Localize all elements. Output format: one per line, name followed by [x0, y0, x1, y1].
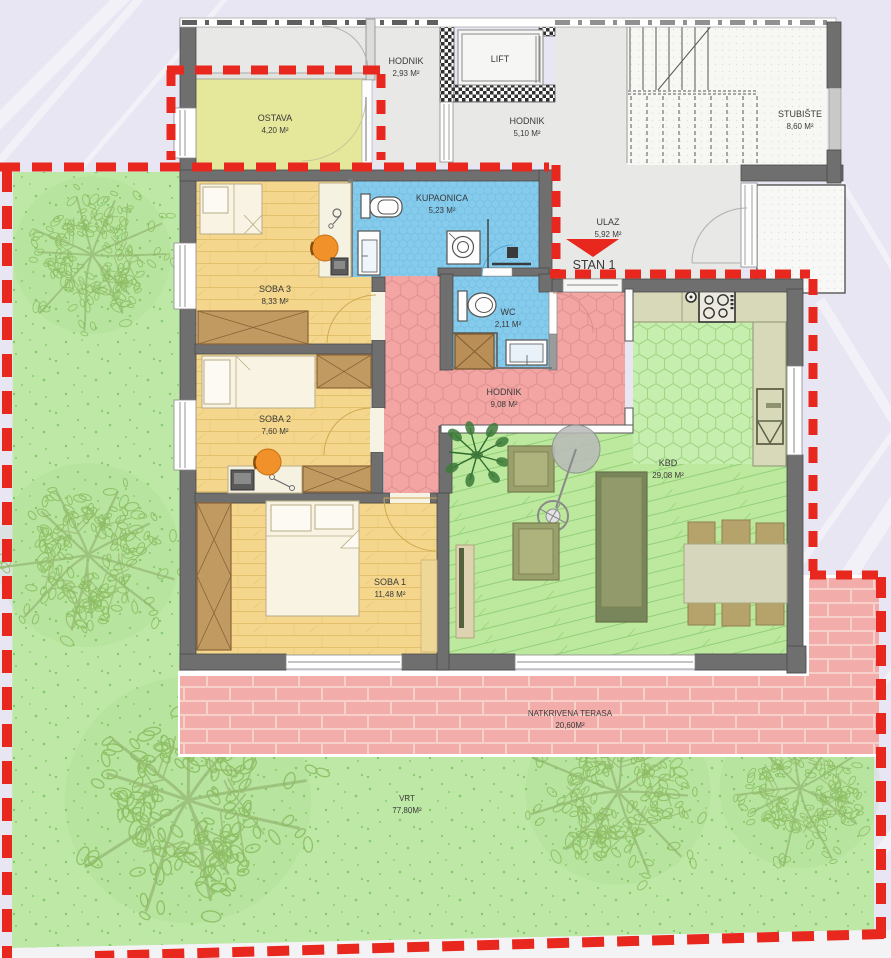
svg-text:7,60 M²: 7,60 M² [261, 427, 288, 436]
svg-text:20,60M²: 20,60M² [555, 721, 585, 730]
svg-text:NATKRIVENA TERASA: NATKRIVENA TERASA [528, 709, 613, 718]
svg-text:HODNIK: HODNIK [486, 387, 521, 397]
svg-text:9,08 M²: 9,08 M² [490, 400, 517, 409]
svg-text:11,48 M²: 11,48 M² [375, 590, 406, 599]
svg-text:WC: WC [501, 307, 516, 317]
svg-text:5,10 M²: 5,10 M² [513, 129, 540, 138]
svg-text:SOBA 1: SOBA 1 [374, 577, 406, 587]
svg-text:LIFT: LIFT [491, 54, 510, 64]
svg-text:STUBIŠTE: STUBIŠTE [778, 109, 822, 119]
svg-text:HODNIK: HODNIK [509, 116, 544, 126]
svg-text:VRT: VRT [399, 794, 415, 803]
svg-text:2,93 M²: 2,93 M² [392, 69, 419, 78]
svg-text:5,92 M²: 5,92 M² [594, 230, 621, 239]
svg-text:SOBA 2: SOBA 2 [259, 414, 291, 424]
svg-text:29,08 M²: 29,08 M² [652, 471, 684, 480]
svg-text:STAN 1: STAN 1 [573, 258, 616, 272]
svg-text:5,23 M²: 5,23 M² [428, 206, 455, 215]
svg-text:8,33 M²: 8,33 M² [261, 297, 288, 306]
svg-text:4,20 M²: 4,20 M² [261, 126, 288, 135]
svg-text:HODNIK: HODNIK [388, 56, 423, 66]
svg-text:SOBA 3: SOBA 3 [259, 284, 291, 294]
svg-text:77,80M²: 77,80M² [392, 806, 422, 815]
svg-text:8,60 M²: 8,60 M² [786, 122, 813, 131]
svg-text:KUPAONICA: KUPAONICA [416, 193, 468, 203]
svg-text:ULAZ: ULAZ [596, 217, 620, 227]
svg-text:2,11 M²: 2,11 M² [495, 320, 522, 329]
svg-text:OSTAVA: OSTAVA [258, 113, 293, 123]
svg-text:KBD: KBD [659, 458, 678, 468]
